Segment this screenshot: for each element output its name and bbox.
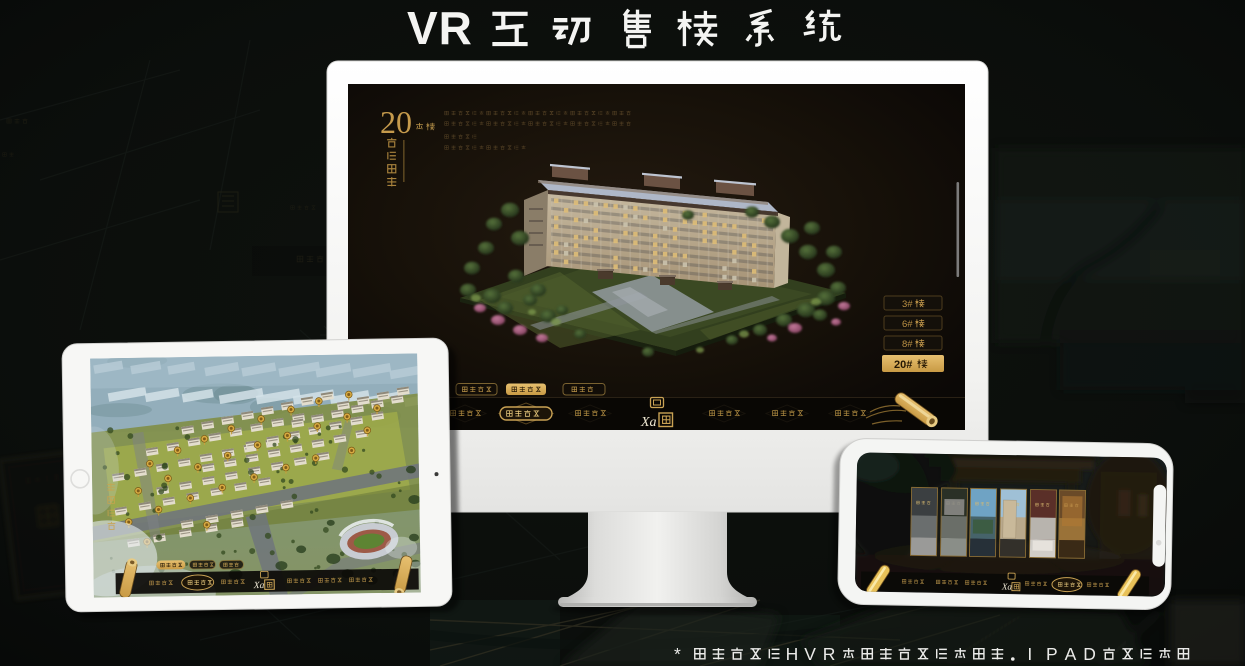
svg-text:6#: 6# — [902, 319, 913, 330]
svg-text:I: I — [1027, 644, 1032, 664]
svg-text:*: * — [674, 644, 681, 664]
svg-text:Xa: Xa — [640, 415, 657, 430]
svg-text:H: H — [786, 644, 799, 664]
svg-text:R: R — [823, 644, 836, 664]
svg-text:8#: 8# — [902, 339, 913, 350]
svg-text:VR: VR — [407, 2, 473, 54]
svg-text:D: D — [1083, 644, 1096, 664]
svg-text:A: A — [1065, 644, 1077, 664]
svg-text:Xa: Xa — [253, 581, 265, 591]
svg-text:V: V — [804, 644, 816, 664]
svg-text:P: P — [1046, 644, 1058, 664]
svg-text:20#: 20# — [894, 359, 912, 371]
svg-text:3#: 3# — [902, 299, 913, 310]
svg-text:Xa: Xa — [1001, 581, 1013, 591]
svg-text:20: 20 — [380, 104, 412, 140]
